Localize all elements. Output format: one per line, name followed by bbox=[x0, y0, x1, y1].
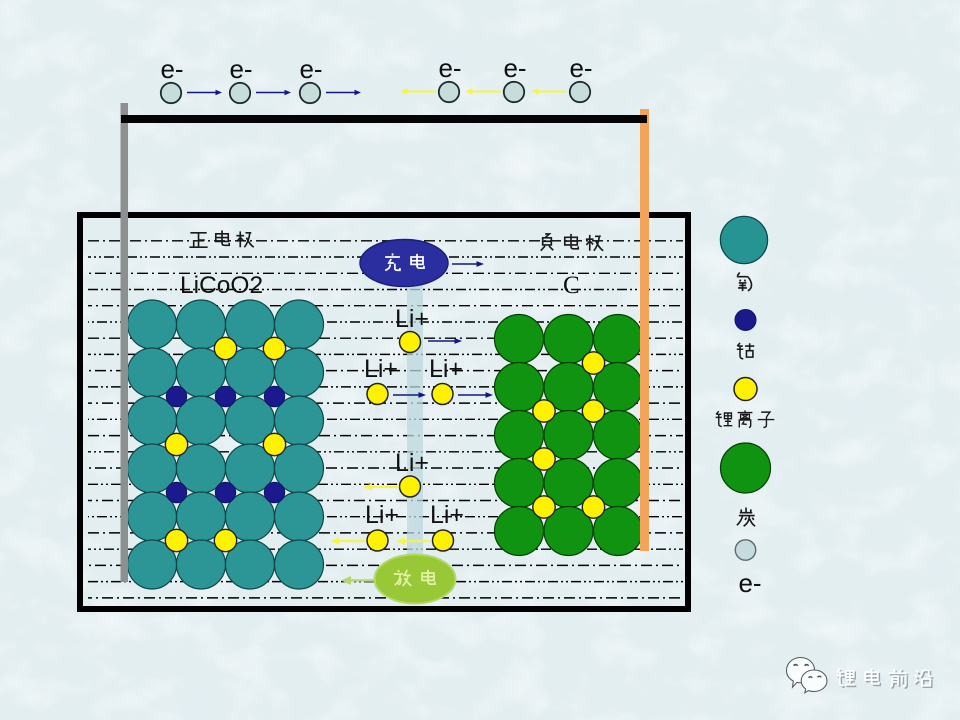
svg-text:LiCoO2: LiCoO2 bbox=[180, 272, 263, 299]
svg-text:Li+: Li+ bbox=[395, 449, 429, 477]
svg-text:e-: e- bbox=[738, 568, 761, 598]
svg-text:e-: e- bbox=[503, 53, 526, 83]
svg-text:e-: e- bbox=[569, 53, 592, 83]
svg-text:C: C bbox=[563, 272, 580, 299]
svg-text:e-: e- bbox=[229, 54, 252, 84]
svg-text:Li+: Li+ bbox=[429, 355, 463, 383]
svg-text:Li+: Li+ bbox=[430, 501, 464, 529]
svg-text:e-: e- bbox=[160, 54, 183, 84]
svg-text:Li+: Li+ bbox=[365, 501, 399, 529]
svg-text:Li+: Li+ bbox=[364, 355, 398, 383]
svg-text:e-: e- bbox=[299, 54, 322, 84]
svg-text:Li+: Li+ bbox=[395, 305, 429, 333]
svg-text:e-: e- bbox=[438, 53, 461, 83]
